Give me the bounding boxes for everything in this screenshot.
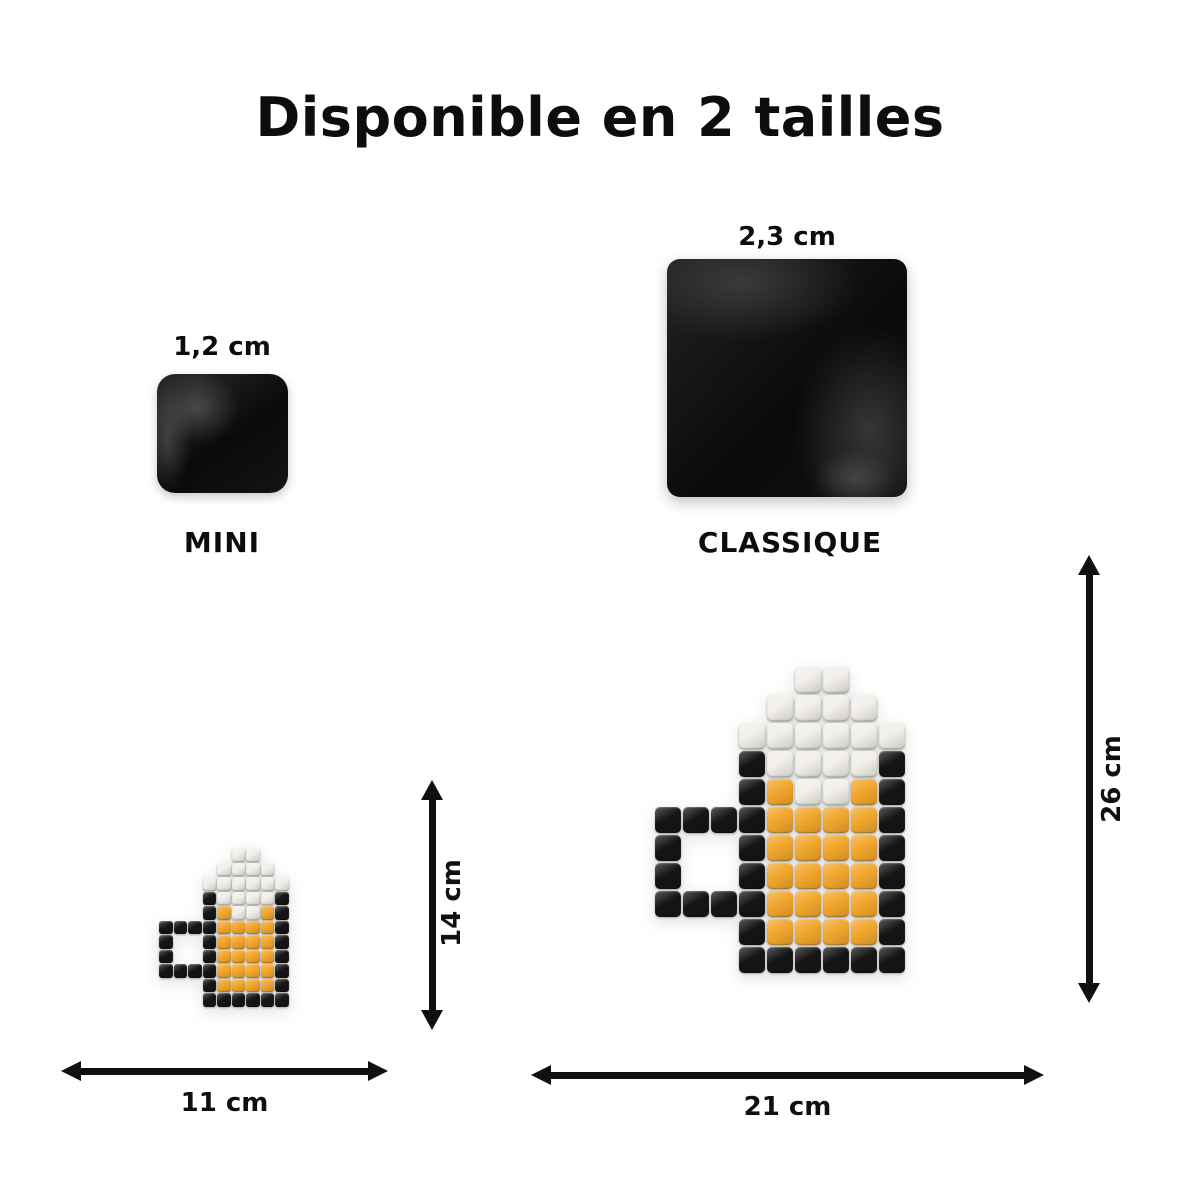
empty-cell: [655, 695, 681, 721]
mosaic-tile: [851, 807, 877, 833]
mini-size-label: 1,2 cm: [92, 332, 352, 362]
mosaic-tile: [217, 950, 231, 964]
small-mug-width-label: 11 cm: [61, 1088, 388, 1118]
mosaic-tile: [203, 877, 217, 891]
empty-cell: [711, 723, 737, 749]
mosaic-tile: [711, 891, 737, 917]
mosaic-tile: [217, 979, 231, 993]
mosaic-tile: [879, 891, 905, 917]
empty-cell: [159, 877, 173, 891]
mosaic-tile: [851, 863, 877, 889]
empty-cell: [655, 751, 681, 777]
empty-cell: [711, 779, 737, 805]
mosaic-tile: [159, 921, 173, 935]
mosaic-tile: [767, 751, 793, 777]
empty-cell: [174, 863, 188, 877]
empty-cell: [655, 779, 681, 805]
empty-cell: [275, 863, 289, 877]
mosaic-tile: [261, 993, 275, 1007]
empty-cell: [655, 723, 681, 749]
mosaic-tile: [232, 848, 246, 862]
mosaic-tile: [739, 779, 765, 805]
classique-size-label: 2,3 cm: [657, 222, 917, 252]
mosaic-tile: [159, 935, 173, 949]
mosaic-tile: [246, 877, 260, 891]
arrowhead-left-icon: [531, 1065, 551, 1085]
mosaic-tile: [232, 979, 246, 993]
mosaic-tile: [739, 947, 765, 973]
empty-cell: [188, 935, 202, 949]
mosaic-tile: [655, 863, 681, 889]
mosaic-tile: [203, 964, 217, 978]
mosaic-tile: [246, 848, 260, 862]
mosaic-tile: [823, 779, 849, 805]
mosaic-tile: [261, 877, 275, 891]
mosaic-tile: [174, 964, 188, 978]
mosaic-tile: [203, 950, 217, 964]
mosaic-tile: [823, 919, 849, 945]
mosaic-tile: [823, 695, 849, 721]
mosaic-tile: [739, 723, 765, 749]
mosaic-tile: [232, 964, 246, 978]
mosaic-tile: [261, 892, 275, 906]
empty-cell: [683, 835, 709, 861]
mosaic-tile: [246, 950, 260, 964]
mosaic-tile: [823, 807, 849, 833]
mosaic-tile: [795, 835, 821, 861]
small-mug-height-arrow: 14 cm: [420, 780, 444, 1030]
empty-cell: [683, 779, 709, 805]
mosaic-tile: [851, 919, 877, 945]
empty-cell: [879, 695, 905, 721]
mosaic-tile: [217, 863, 231, 877]
mosaic-tile: [246, 921, 260, 935]
mosaic-tile: [739, 751, 765, 777]
mosaic-tile: [851, 695, 877, 721]
mosaic-tile: [275, 950, 289, 964]
large-mug-height-label: 26 cm: [1098, 729, 1126, 829]
mosaic-tile: [655, 835, 681, 861]
mosaic-tile: [795, 947, 821, 973]
classique-name-label: CLASSIQUE: [660, 526, 920, 559]
empty-cell: [711, 863, 737, 889]
empty-cell: [159, 892, 173, 906]
arrowhead-down-icon: [421, 1010, 443, 1030]
mosaic-tile: [767, 807, 793, 833]
empty-cell: [188, 892, 202, 906]
empty-cell: [711, 695, 737, 721]
empty-cell: [655, 947, 681, 973]
mosaic-tile: [261, 979, 275, 993]
mosaic-tile: [188, 921, 202, 935]
mosaic-tile: [851, 751, 877, 777]
mosaic-tile: [275, 964, 289, 978]
empty-cell: [683, 751, 709, 777]
mosaic-tile: [232, 892, 246, 906]
mosaic-tile: [261, 863, 275, 877]
mosaic-tile: [275, 993, 289, 1007]
empty-cell: [739, 667, 765, 693]
empty-cell: [174, 993, 188, 1007]
mosaic-tile: [275, 921, 289, 935]
mosaic-tile: [217, 892, 231, 906]
arrowhead-right-icon: [1024, 1065, 1044, 1085]
large-mug-width-label: 21 cm: [531, 1092, 1044, 1122]
empty-cell: [159, 979, 173, 993]
mini-name-label: MINI: [92, 526, 352, 559]
mosaic-tile: [795, 667, 821, 693]
mosaic-tile: [217, 964, 231, 978]
mosaic-tile: [232, 950, 246, 964]
mosaic-tile: [217, 921, 231, 935]
mosaic-tile: [795, 751, 821, 777]
empty-cell: [711, 919, 737, 945]
mosaic-tile: [217, 935, 231, 949]
mosaic-tile: [823, 723, 849, 749]
mosaic-tile: [203, 979, 217, 993]
mosaic-tile: [795, 863, 821, 889]
mosaic-tile: [823, 891, 849, 917]
empty-cell: [683, 667, 709, 693]
empty-cell: [217, 848, 231, 862]
empty-cell: [174, 906, 188, 920]
mosaic-tile: [246, 892, 260, 906]
mosaic-tile: [795, 891, 821, 917]
mosaic-tile: [683, 891, 709, 917]
mosaic-tile: [879, 863, 905, 889]
mosaic-tile: [711, 807, 737, 833]
mosaic-tile: [261, 950, 275, 964]
mosaic-tile: [879, 919, 905, 945]
empty-cell: [655, 667, 681, 693]
mosaic-tile: [203, 921, 217, 935]
mosaic-tile: [203, 892, 217, 906]
mosaic-tile: [683, 807, 709, 833]
mosaic-tile: [203, 993, 217, 1007]
mosaic-tile: [261, 964, 275, 978]
empty-cell: [159, 906, 173, 920]
empty-cell: [683, 947, 709, 973]
empty-cell: [683, 695, 709, 721]
mosaic-tile: [275, 877, 289, 891]
mosaic-tile: [767, 919, 793, 945]
mini-tile-photo: [157, 374, 288, 493]
arrowhead-down-icon: [1078, 983, 1100, 1003]
mosaic-tile: [851, 835, 877, 861]
empty-cell: [711, 947, 737, 973]
arrowhead-right-icon: [368, 1061, 388, 1081]
mosaic-tile: [851, 891, 877, 917]
empty-cell: [767, 667, 793, 693]
mosaic-tile: [246, 964, 260, 978]
mosaic-tile: [795, 807, 821, 833]
mosaic-tile: [739, 863, 765, 889]
mosaic-tile: [823, 947, 849, 973]
mosaic-tile: [823, 751, 849, 777]
empty-cell: [174, 950, 188, 964]
mosaic-tile: [217, 906, 231, 920]
small-beer-mug-pixel-art: [159, 848, 289, 1007]
mosaic-tile: [879, 835, 905, 861]
mosaic-tile: [851, 779, 877, 805]
small-mug-height-label: 14 cm: [438, 853, 466, 953]
empty-cell: [174, 892, 188, 906]
mosaic-tile: [246, 906, 260, 920]
empty-cell: [711, 751, 737, 777]
mosaic-tile: [767, 891, 793, 917]
infographic-canvas: Disponible en 2 tailles 1,2 cm MINI 2,3 …: [0, 0, 1200, 1200]
empty-cell: [159, 848, 173, 862]
mosaic-tile: [232, 906, 246, 920]
mosaic-tile: [232, 993, 246, 1007]
mosaic-tile: [188, 964, 202, 978]
mosaic-tile: [655, 891, 681, 917]
empty-cell: [711, 835, 737, 861]
classique-tile-photo: [667, 259, 907, 497]
empty-cell: [188, 979, 202, 993]
mosaic-tile: [217, 993, 231, 1007]
empty-cell: [683, 723, 709, 749]
mosaic-tile: [275, 979, 289, 993]
mosaic-tile: [767, 723, 793, 749]
mosaic-tile: [767, 835, 793, 861]
empty-cell: [879, 667, 905, 693]
large-mug-width-arrow: 21 cm: [531, 1062, 1044, 1124]
empty-cell: [683, 919, 709, 945]
mosaic-tile: [246, 935, 260, 949]
empty-cell: [174, 935, 188, 949]
empty-cell: [655, 919, 681, 945]
mosaic-tile: [767, 779, 793, 805]
mosaic-tile: [655, 807, 681, 833]
mosaic-tile: [217, 877, 231, 891]
mosaic-tile: [246, 993, 260, 1007]
empty-cell: [275, 848, 289, 862]
empty-cell: [188, 906, 202, 920]
empty-cell: [174, 848, 188, 862]
arrowhead-left-icon: [61, 1061, 81, 1081]
empty-cell: [203, 848, 217, 862]
mosaic-tile: [795, 723, 821, 749]
empty-cell: [174, 877, 188, 891]
mosaic-tile: [879, 751, 905, 777]
mosaic-tile: [739, 891, 765, 917]
mosaic-tile: [159, 964, 173, 978]
mosaic-tile: [879, 779, 905, 805]
empty-cell: [188, 950, 202, 964]
mosaic-tile: [159, 950, 173, 964]
mosaic-tile: [823, 863, 849, 889]
mosaic-tile: [795, 779, 821, 805]
empty-cell: [711, 667, 737, 693]
mosaic-tile: [261, 921, 275, 935]
empty-cell: [174, 979, 188, 993]
empty-cell: [851, 667, 877, 693]
empty-cell: [159, 993, 173, 1007]
large-beer-mug-pixel-art: [655, 667, 905, 973]
mosaic-tile: [795, 695, 821, 721]
mosaic-tile: [851, 947, 877, 973]
mosaic-tile: [203, 906, 217, 920]
mosaic-tile: [246, 979, 260, 993]
mosaic-tile: [232, 863, 246, 877]
mosaic-tile: [246, 863, 260, 877]
empty-cell: [188, 848, 202, 862]
mosaic-tile: [203, 935, 217, 949]
mosaic-tile: [261, 935, 275, 949]
mosaic-tile: [232, 921, 246, 935]
mosaic-tile: [823, 667, 849, 693]
empty-cell: [188, 877, 202, 891]
mosaic-tile: [232, 935, 246, 949]
arrow-line: [429, 796, 436, 1014]
mosaic-tile: [739, 835, 765, 861]
empty-cell: [188, 863, 202, 877]
mosaic-tile: [767, 947, 793, 973]
mosaic-tile: [879, 947, 905, 973]
arrow-line: [1086, 571, 1093, 987]
mosaic-tile: [232, 877, 246, 891]
mosaic-tile: [767, 863, 793, 889]
empty-cell: [739, 695, 765, 721]
mosaic-tile: [275, 892, 289, 906]
empty-cell: [683, 863, 709, 889]
mosaic-tile: [851, 723, 877, 749]
mosaic-tile: [275, 935, 289, 949]
mosaic-tile: [767, 695, 793, 721]
empty-cell: [203, 863, 217, 877]
arrow-line: [79, 1068, 370, 1075]
mosaic-tile: [879, 807, 905, 833]
small-mug-width-arrow: 11 cm: [61, 1058, 388, 1120]
mosaic-tile: [739, 919, 765, 945]
mosaic-tile: [739, 807, 765, 833]
empty-cell: [159, 863, 173, 877]
empty-cell: [261, 848, 275, 862]
mosaic-tile: [174, 921, 188, 935]
mosaic-tile: [823, 835, 849, 861]
mosaic-tile: [261, 906, 275, 920]
mosaic-tile: [275, 906, 289, 920]
arrow-line: [549, 1072, 1026, 1079]
page-title: Disponible en 2 tailles: [0, 86, 1200, 149]
empty-cell: [188, 993, 202, 1007]
mosaic-tile: [795, 919, 821, 945]
large-mug-height-arrow: 26 cm: [1077, 555, 1101, 1003]
mosaic-tile: [879, 723, 905, 749]
